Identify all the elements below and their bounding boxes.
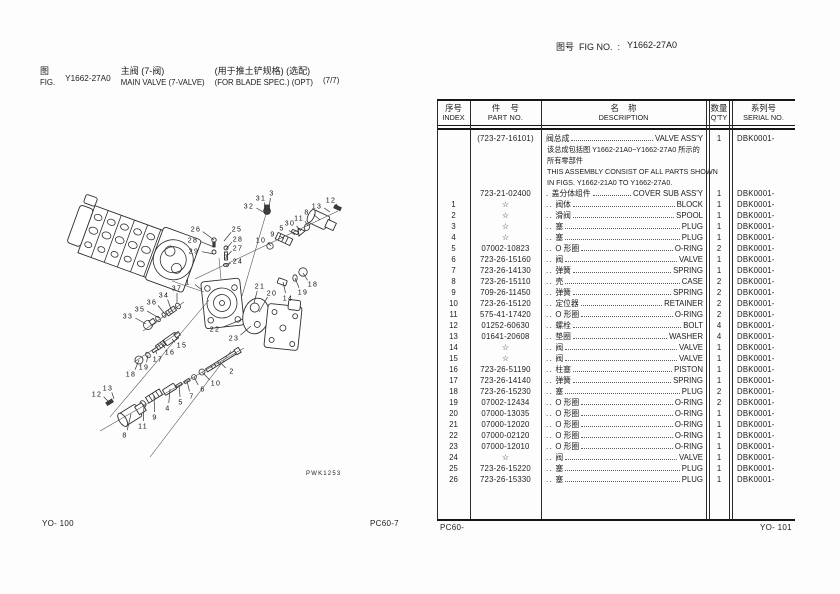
desc-cn: 壳 xyxy=(555,276,563,287)
desc-cn: O 形圈 xyxy=(555,441,579,452)
figure-header: 图 FIG. Y1662-27A0 主阀 (7-阀) MAIN VALVE (7… xyxy=(40,66,339,88)
plug-row-middle xyxy=(142,302,182,331)
desc-indent-dots: .. xyxy=(546,266,553,275)
desc-indent-dots: .. xyxy=(546,464,553,473)
cell-serial: DBK0001- xyxy=(732,398,795,407)
figure-number: Y1662-27A0 xyxy=(65,73,111,84)
diagram-callout-number: 9 xyxy=(152,415,157,422)
cell-index: 4 xyxy=(437,233,470,242)
desc-cn: 盖分体组件 xyxy=(552,188,591,199)
col-divider xyxy=(729,101,730,519)
desc-indent-dots: .. xyxy=(546,255,553,264)
cell-serial: DBK0001- xyxy=(732,233,795,242)
desc-en: O-RING xyxy=(675,244,703,253)
cell-index: 19 xyxy=(437,398,470,407)
col-divider xyxy=(709,101,710,519)
cell-description: .. 弹簧 SPRING xyxy=(541,375,706,386)
cell-description: .. 螺栓 BOLT xyxy=(541,320,706,331)
desc-indent-dots: .. xyxy=(546,288,553,297)
leader-dots xyxy=(565,239,680,240)
desc-cn: 阀 xyxy=(555,452,563,463)
col-divider xyxy=(541,101,542,519)
cell-qty: 1 xyxy=(709,343,729,352)
diagram-callout-number: 10 xyxy=(211,381,221,388)
assembly-desc-cn: 阀总成 xyxy=(546,133,569,144)
cell-index: 7 xyxy=(437,266,470,275)
leader-dots xyxy=(571,140,653,141)
desc-indent-dots: .. xyxy=(546,211,553,220)
desc-indent-dots: .. xyxy=(546,332,553,341)
diagram-callout-number: 3 xyxy=(269,191,274,198)
cell-serial: DBK0001- xyxy=(732,299,795,308)
leader-dots xyxy=(565,261,677,262)
diagram-callout-number: 18 xyxy=(308,282,318,289)
diagram-callout-number: 2 xyxy=(229,369,234,376)
cell-qty: 1 xyxy=(709,409,729,418)
cell-qty: 4 xyxy=(709,321,729,330)
diagram-callout-number: 5 xyxy=(279,226,284,233)
diagram-callout-number: 25 xyxy=(232,227,242,234)
cell-part-no: ☆ xyxy=(470,233,541,242)
desc-en: O-RING xyxy=(675,409,703,418)
cell-index: 18 xyxy=(437,387,470,396)
diagram-drawing-code: PWK1253 xyxy=(306,471,341,477)
header-qty-cn: 数量 xyxy=(709,103,729,113)
cell-serial: DBK0001- xyxy=(732,365,795,374)
desc-cn: 塞 xyxy=(555,463,563,474)
cell-qty: 4 xyxy=(709,332,729,341)
cell-index: 11 xyxy=(437,310,470,319)
cell-serial: DBK0001- xyxy=(732,222,795,231)
cell-part-no: 723-26-51190 xyxy=(470,365,541,374)
cell-qty: 1 xyxy=(709,354,729,363)
cell-qty: 2 xyxy=(709,277,729,286)
desc-cn: 塞 xyxy=(555,386,563,397)
desc-cn: 垫圈 xyxy=(555,331,571,342)
diagram-callout-number: 19 xyxy=(298,290,308,297)
cell-part-no: ☆ xyxy=(470,211,541,220)
table-row: 18 723-26-15230 .. 塞 PLUG 2 DBK0001- xyxy=(437,386,795,397)
cell-index: 2 xyxy=(437,211,470,220)
desc-indent-dots: .. xyxy=(546,244,553,253)
diagram-callout-number: 12 xyxy=(92,392,102,399)
cell-index: 16 xyxy=(437,365,470,374)
desc-cn: 阀体 xyxy=(555,199,571,210)
leader-dots xyxy=(573,217,674,218)
cell-description: .. 滑阀 SPOOL xyxy=(541,210,706,221)
assembly-note-row: 所有零部件 xyxy=(437,155,795,166)
callout-leader-line xyxy=(201,242,214,247)
header-serial-cn: 系列号 xyxy=(732,103,795,113)
cell-description: .. 塞 PLUG xyxy=(541,463,706,474)
end-block-illustration xyxy=(264,297,303,350)
cell-serial: DBK0001- xyxy=(732,475,795,484)
table-row: 20 07000-13035 .. O 形圈 O-RING 1 DBK0001- xyxy=(437,408,795,419)
desc-indent-dots: . xyxy=(546,189,550,198)
diagram-callout-number: 35 xyxy=(135,307,145,314)
desc-cn: 阀 xyxy=(555,353,563,364)
desc-cn: O 形圈 xyxy=(555,419,579,430)
desc-cn: 塞 xyxy=(555,232,563,243)
col-divider xyxy=(732,101,733,519)
cell-part-no: 07002-12434 xyxy=(470,398,541,407)
diagram-callout-number: 37 xyxy=(172,286,182,293)
cell-serial: DBK0001- xyxy=(732,354,795,363)
cell-part-no: 07002-10823 xyxy=(470,244,541,253)
cell-description: .. 塞 PLUG xyxy=(541,386,706,397)
cell-qty: 1 xyxy=(709,365,729,374)
desc-indent-dots: .. xyxy=(546,365,553,374)
diagram-callout-number: 4 xyxy=(165,406,170,413)
leader-dots xyxy=(565,481,680,482)
cell-part-no: 07000-12020 xyxy=(470,420,541,429)
diagram-callout-number: 22 xyxy=(210,327,220,334)
desc-indent-dots: .. xyxy=(546,431,553,440)
leader-dots xyxy=(565,360,677,361)
cell-part-no: 723-26-15160 xyxy=(470,255,541,264)
cell-qty: 1 xyxy=(709,255,729,264)
cell-index: 24 xyxy=(437,453,470,462)
cell-index: 22 xyxy=(437,431,470,440)
cell-index: 13 xyxy=(437,332,470,341)
cell-index: 6 xyxy=(437,255,470,264)
diagram-callout-number: 28 xyxy=(233,237,243,244)
desc-en: BOLT xyxy=(683,321,703,330)
cell-qty: 2 xyxy=(709,244,729,253)
cell-index: 15 xyxy=(437,354,470,363)
figure-title-en: MAIN VALVE (7-VALVE) xyxy=(121,77,205,88)
footer-page-right: YO- 101 xyxy=(760,523,792,532)
header-part-en: PART NO. xyxy=(470,113,541,123)
table-body-rows: 723-21-02400 . 盖分体组件 COVER SUB ASS'Y 1 D… xyxy=(437,188,795,485)
desc-en: PLUG xyxy=(682,233,703,242)
fig-label-cn: 图 xyxy=(40,66,55,77)
leader-dots xyxy=(565,393,680,394)
diagram-callout-number: 32 xyxy=(244,204,254,211)
desc-en: O-RING xyxy=(675,420,703,429)
callout-leader-line xyxy=(168,300,171,310)
cell-description: . 盖分体组件 COVER SUB ASS'Y xyxy=(541,188,706,199)
desc-en: O-RING xyxy=(675,398,703,407)
diagram-callout-number: 11 xyxy=(294,216,304,223)
cell-serial: DBK0001- xyxy=(732,431,795,440)
table-border-left xyxy=(437,101,438,519)
diagram-callout-number: 28 xyxy=(188,238,198,245)
cell-qty: 1 xyxy=(709,189,729,198)
table-row: 1 ☆ .. 阀体 BLOCK 1 DBK0001- xyxy=(437,199,795,210)
callout-leader-line xyxy=(112,392,114,399)
cell-description: .. 塞 PLUG xyxy=(541,232,706,243)
cell-serial: DBK0001- xyxy=(732,211,795,220)
cell-serial: DBK0001- xyxy=(732,321,795,330)
cell-serial: DBK0001- xyxy=(732,288,795,297)
desc-en: RETAINER xyxy=(664,299,703,308)
cell-qty: 2 xyxy=(709,299,729,308)
cell-description: .. 阀 VALVE xyxy=(541,452,706,463)
cell-serial: DBK0001- xyxy=(732,266,795,275)
cell-part-no: 01641-20608 xyxy=(470,332,541,341)
fig-no-line: 图号 FIG NO. : Y1662-27A0 xyxy=(556,40,677,53)
diagram-callout-number: 1 xyxy=(185,280,190,287)
cell-description: .. O 形圈 O-RING xyxy=(541,419,706,430)
leader-dots xyxy=(581,316,673,317)
cell-qty: 2 xyxy=(709,288,729,297)
table-row: 14 ☆ .. 阀 VALVE 1 DBK0001- xyxy=(437,342,795,353)
leader-dots xyxy=(573,382,671,383)
cell-part-no: 575-41-17420 xyxy=(470,310,541,319)
cell-description: .. O 形圈 O-RING xyxy=(541,441,706,452)
callout-leader-line xyxy=(147,311,159,318)
cell-serial: DBK0001- xyxy=(732,277,795,286)
cell-index: 20 xyxy=(437,409,470,418)
table-body: (723-27-16101) 阀总成 VALVE ASS'Y 1 DBK0001… xyxy=(437,130,795,485)
desc-en: PLUG xyxy=(682,387,703,396)
cell-serial: DBK0001- xyxy=(732,420,795,429)
cell-serial: DBK0001- xyxy=(732,189,795,198)
cell-serial: DBK0001- xyxy=(732,453,795,462)
diagram-callout-number: 34 xyxy=(159,293,169,300)
table-row: 24 ☆ .. 阀 VALVE 1 DBK0001- xyxy=(437,452,795,463)
cell-part-no: ☆ xyxy=(470,222,541,231)
header-qty-en: Q'TY xyxy=(709,113,729,123)
cell-qty: 1 xyxy=(709,266,729,275)
desc-indent-dots: .. xyxy=(546,233,553,242)
desc-indent-dots: .. xyxy=(546,354,553,363)
cell-description: .. 垫圈 WASHER xyxy=(541,331,706,342)
cell-part-no: ☆ xyxy=(470,453,541,462)
cell-qty: 1 xyxy=(709,442,729,451)
fig-no-label: 图号 FIG NO. : xyxy=(556,40,620,53)
desc-cn: O 形圈 xyxy=(555,309,579,320)
cell-description: .. O 形圈 O-RING xyxy=(541,243,706,254)
leader-dots xyxy=(573,294,671,295)
cell-description: .. 阀 VALVE xyxy=(541,342,706,353)
table-row: 11 575-41-17420 .. O 形圈 O-RING 2 DBK0001… xyxy=(437,309,795,320)
assembly-note-row: IN FIGS. Y1662-21A0 TO Y1662-27A0. xyxy=(437,177,795,188)
table-row: 6 723-26-15160 .. 阀 VALVE 1 DBK0001- xyxy=(437,254,795,265)
diagram-callout-number: 9 xyxy=(270,232,275,239)
desc-cn: O 形圈 xyxy=(555,430,579,441)
assembly-note-row: 该总成包括图 Y1662-21A0~Y1662-27A0 所示的 xyxy=(437,144,795,155)
cell-part-no: ☆ xyxy=(470,200,541,209)
cell-part-no: 07000-13035 xyxy=(470,409,541,418)
callout-leader-line xyxy=(179,385,180,397)
diagram-callout-number: 24 xyxy=(233,259,243,266)
cell-description: .. 定位器 RETAINER xyxy=(541,298,706,309)
assembly-serial: DBK0001- xyxy=(732,134,795,143)
assembly-note-line: THIS ASSEMBLY CONSIST OF ALL PARTS SHOWN xyxy=(541,167,706,176)
cell-description: .. 弹簧 SPRING xyxy=(541,265,706,276)
cell-qty: 2 xyxy=(709,310,729,319)
desc-indent-dots: .. xyxy=(546,420,553,429)
desc-indent-dots: .. xyxy=(546,321,553,330)
desc-cn: 弹簧 xyxy=(555,375,571,386)
footer-page-left: YO- 100 xyxy=(42,519,74,528)
diagram-callout-number: 21 xyxy=(255,284,265,291)
desc-indent-dots: .. xyxy=(546,343,553,352)
cell-part-no: 723-26-14140 xyxy=(470,376,541,385)
cell-part-no: 07000-12010 xyxy=(470,442,541,451)
callout-leader-line xyxy=(256,208,263,212)
cell-qty: 1 xyxy=(709,233,729,242)
cell-serial: DBK0001- xyxy=(732,310,795,319)
cell-description: .. 壳 CASE xyxy=(541,276,706,287)
assembly-part-no: (723-27-16101) xyxy=(470,134,541,143)
callout-leader-line xyxy=(187,381,190,391)
desc-indent-dots: .. xyxy=(546,409,553,418)
diagram-callout-number: 31 xyxy=(256,196,266,203)
cell-qty: 1 xyxy=(709,211,729,220)
table-row: 3 ☆ .. 塞 PLUG 1 DBK0001- xyxy=(437,221,795,232)
figure-title-cn: 主阀 (7-阀) xyxy=(121,66,205,77)
leader-dots xyxy=(581,437,673,438)
cell-index: 21 xyxy=(437,420,470,429)
fig-no-value: Y1662-27A0 xyxy=(627,40,677,53)
header-index-en: INDEX xyxy=(437,113,470,123)
cell-index: 1 xyxy=(437,200,470,209)
callout-leader-line xyxy=(224,232,231,241)
cell-serial: DBK0001- xyxy=(732,376,795,385)
diagram-callout-number: 15 xyxy=(177,343,187,350)
diagram-callout-number: 13 xyxy=(312,204,322,211)
table-row: 2 ☆ .. 滑阀 SPOOL 1 DBK0001- xyxy=(437,210,795,221)
cell-index: 8 xyxy=(437,277,470,286)
table-row: 4 ☆ .. 塞 PLUG 1 DBK0001- xyxy=(437,232,795,243)
cell-description: .. O 形圈 O-RING xyxy=(541,397,706,408)
diagram-callout-number: 23 xyxy=(229,336,239,343)
cell-index: 26 xyxy=(437,475,470,484)
diagram-callout-number: 36 xyxy=(147,300,157,307)
diagram-callout-number: 16 xyxy=(165,350,175,357)
callout-leader-line xyxy=(203,232,214,240)
assembly-note-line: 所有零部件 xyxy=(541,156,706,166)
header-index-cn: 序号 xyxy=(437,103,470,113)
assembly-row: (723-27-16101) 阀总成 VALVE ASS'Y 1 DBK0001… xyxy=(437,133,795,144)
table-row: 17 723-26-14140 .. 弹簧 SPRING 1 DBK0001- xyxy=(437,375,795,386)
diagram-callout-number: 19 xyxy=(139,365,149,372)
desc-en: PLUG xyxy=(682,222,703,231)
cell-description: .. 塞 PLUG xyxy=(541,221,706,232)
table-row: 12 01252-60630 .. 螺栓 BOLT 4 DBK0001- xyxy=(437,320,795,331)
desc-indent-dots: .. xyxy=(546,310,553,319)
table-row: 13 01641-20608 .. 垫圈 WASHER 4 DBK0001- xyxy=(437,331,795,342)
diagram-callout-number: 20 xyxy=(267,291,277,298)
cell-qty: 2 xyxy=(709,387,729,396)
figure-spec-cn: (用于推土铲规格) (选配) xyxy=(215,66,313,77)
diagram-callout-number: 27 xyxy=(233,246,243,253)
col-divider xyxy=(706,101,707,519)
assembly-note-line: IN FIGS. Y1662-21A0 TO Y1662-27A0. xyxy=(541,178,706,187)
diagram-callout-number: 11 xyxy=(138,424,148,431)
cell-qty: 1 xyxy=(709,222,729,231)
desc-indent-dots: .. xyxy=(546,398,553,407)
desc-cn: O 形圈 xyxy=(555,408,579,419)
cell-part-no: ☆ xyxy=(470,343,541,352)
table-row: 5 07002-10823 .. O 形圈 O-RING 2 DBK0001- xyxy=(437,243,795,254)
leader-dots xyxy=(581,404,673,405)
diagram-callout-number: 30 xyxy=(285,221,295,228)
leader-dots xyxy=(573,272,671,273)
assembly-desc-en: VALVE ASS'Y xyxy=(655,134,703,143)
desc-en: SPOOL xyxy=(676,211,703,220)
desc-indent-dots: .. xyxy=(546,200,553,209)
cell-description: .. 塞 PLUG xyxy=(541,474,706,485)
desc-en: WASHER xyxy=(669,332,703,341)
desc-indent-dots: .. xyxy=(546,299,553,308)
cell-qty: 2 xyxy=(709,398,729,407)
col-divider xyxy=(470,101,471,519)
footer-model-center: PC60-7 xyxy=(370,519,399,528)
table-row: 22 07000-02120 .. O 形圈 O-RING 1 DBK0001- xyxy=(437,430,795,441)
desc-en: COVER SUB ASS'Y xyxy=(633,189,703,198)
desc-indent-dots: .. xyxy=(546,387,553,396)
table-row: 21 07000-12020 .. O 形圈 O-RING 1 DBK0001- xyxy=(437,419,795,430)
cell-index: 17 xyxy=(437,376,470,385)
leader-dots xyxy=(565,228,680,229)
diagram-callout-number: 5 xyxy=(178,400,183,407)
table-row: 26 723-26-15330 .. 塞 PLUG 1 DBK0001- xyxy=(437,474,795,485)
table-row: 16 723-26-51190 .. 柱塞 PISTON 1 DBK0001- xyxy=(437,364,795,375)
cell-part-no: 723-26-15330 xyxy=(470,475,541,484)
desc-en: PLUG xyxy=(682,475,703,484)
desc-en: VALVE xyxy=(679,453,703,462)
leader-dots xyxy=(581,448,673,449)
desc-en: BLOCK xyxy=(677,200,703,209)
desc-en: PLUG xyxy=(682,464,703,473)
assembly-qty: 1 xyxy=(709,134,729,143)
diagram-callout-number: 18 xyxy=(126,372,136,379)
desc-cn: 弹簧 xyxy=(555,265,571,276)
desc-cn: 阀 xyxy=(555,254,563,265)
cell-qty: 1 xyxy=(709,464,729,473)
cell-index: 10 xyxy=(437,299,470,308)
figure-spec-en: (FOR BLADE SPEC.) (OPT) xyxy=(215,77,313,88)
cell-part-no: 723-26-14130 xyxy=(470,266,541,275)
desc-en: CASE xyxy=(682,277,703,286)
header-desc-en: DESCRIPTION xyxy=(541,113,706,123)
diagram-callout-number: 33 xyxy=(123,314,133,321)
callout-leader-line xyxy=(158,305,165,314)
cell-serial: DBK0001- xyxy=(732,387,795,396)
desc-cn: 塞 xyxy=(555,474,563,485)
leader-dots xyxy=(581,250,673,251)
table-row: 723-21-02400 . 盖分体组件 COVER SUB ASS'Y 1 D… xyxy=(437,188,795,199)
cell-serial: DBK0001- xyxy=(732,464,795,473)
diagram-callout-number: 17 xyxy=(153,357,163,364)
cell-part-no: ☆ xyxy=(470,354,541,363)
desc-cn: 柱塞 xyxy=(555,364,571,375)
cell-index: 23 xyxy=(437,442,470,451)
header-serial-en: SERIAL NO. xyxy=(732,113,795,123)
cell-description: .. 柱塞 PISTON xyxy=(541,364,706,375)
callout-leader-line xyxy=(135,318,146,324)
cell-index: 14 xyxy=(437,343,470,352)
desc-cn: 塞 xyxy=(555,221,563,232)
cell-description: .. 阀体 BLOCK xyxy=(541,199,706,210)
leader-dots xyxy=(573,371,672,372)
diagram-callout-number: 29 xyxy=(189,249,199,256)
desc-cn: 螺栓 xyxy=(555,320,571,331)
cell-part-no: 723-26-15110 xyxy=(470,277,541,286)
cell-qty: 1 xyxy=(709,453,729,462)
cell-description: .. 阀 VALVE xyxy=(541,254,706,265)
callout-leader-line xyxy=(104,397,109,402)
cell-index: 25 xyxy=(437,464,470,473)
cell-part-no: 723-26-15230 xyxy=(470,387,541,396)
table-row: 19 07002-12434 .. O 形圈 O-RING 2 DBK0001- xyxy=(437,397,795,408)
cell-qty: 1 xyxy=(709,200,729,209)
cell-serial: DBK0001- xyxy=(732,332,795,341)
